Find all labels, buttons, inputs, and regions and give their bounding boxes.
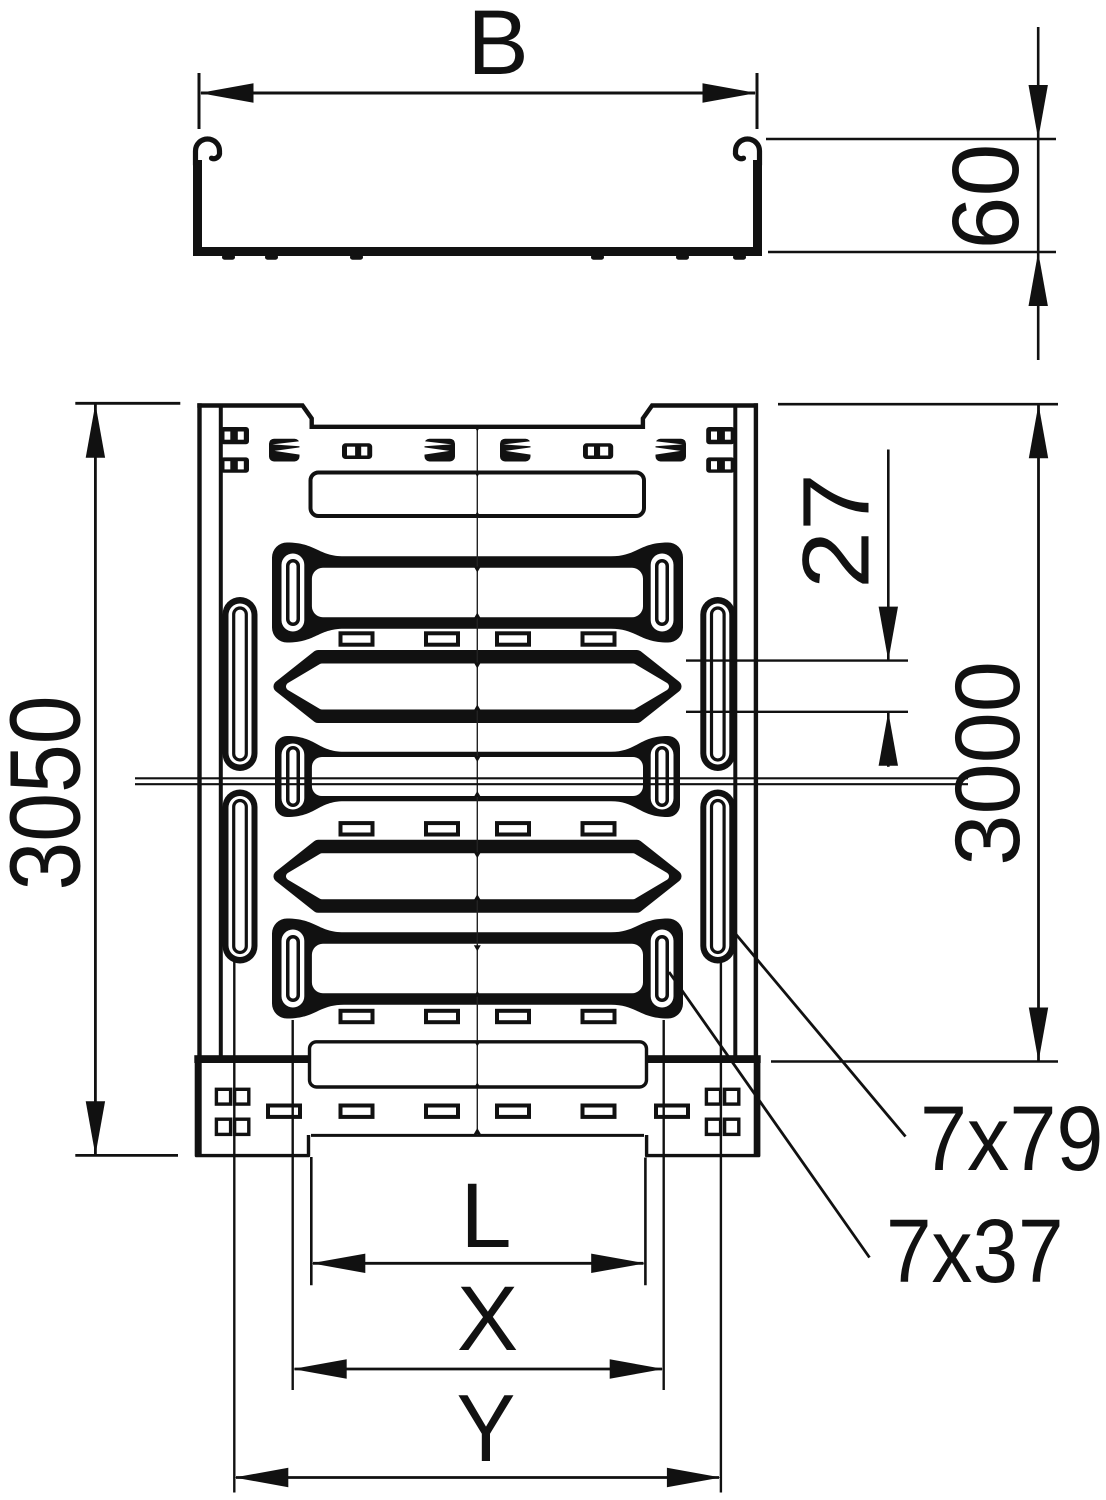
svg-text:7x79: 7x79 [920, 1087, 1103, 1190]
svg-text:27: 27 [784, 473, 890, 589]
svg-text:7x37: 7x37 [886, 1201, 1064, 1301]
svg-text:3050: 3050 [0, 695, 101, 890]
svg-text:B: B [467, 0, 528, 94]
svg-text:L: L [460, 1165, 511, 1267]
svg-text:3000: 3000 [937, 661, 1039, 866]
svg-text:60: 60 [933, 144, 1039, 250]
svg-text:Y: Y [457, 1375, 516, 1482]
svg-text:X: X [457, 1268, 518, 1370]
